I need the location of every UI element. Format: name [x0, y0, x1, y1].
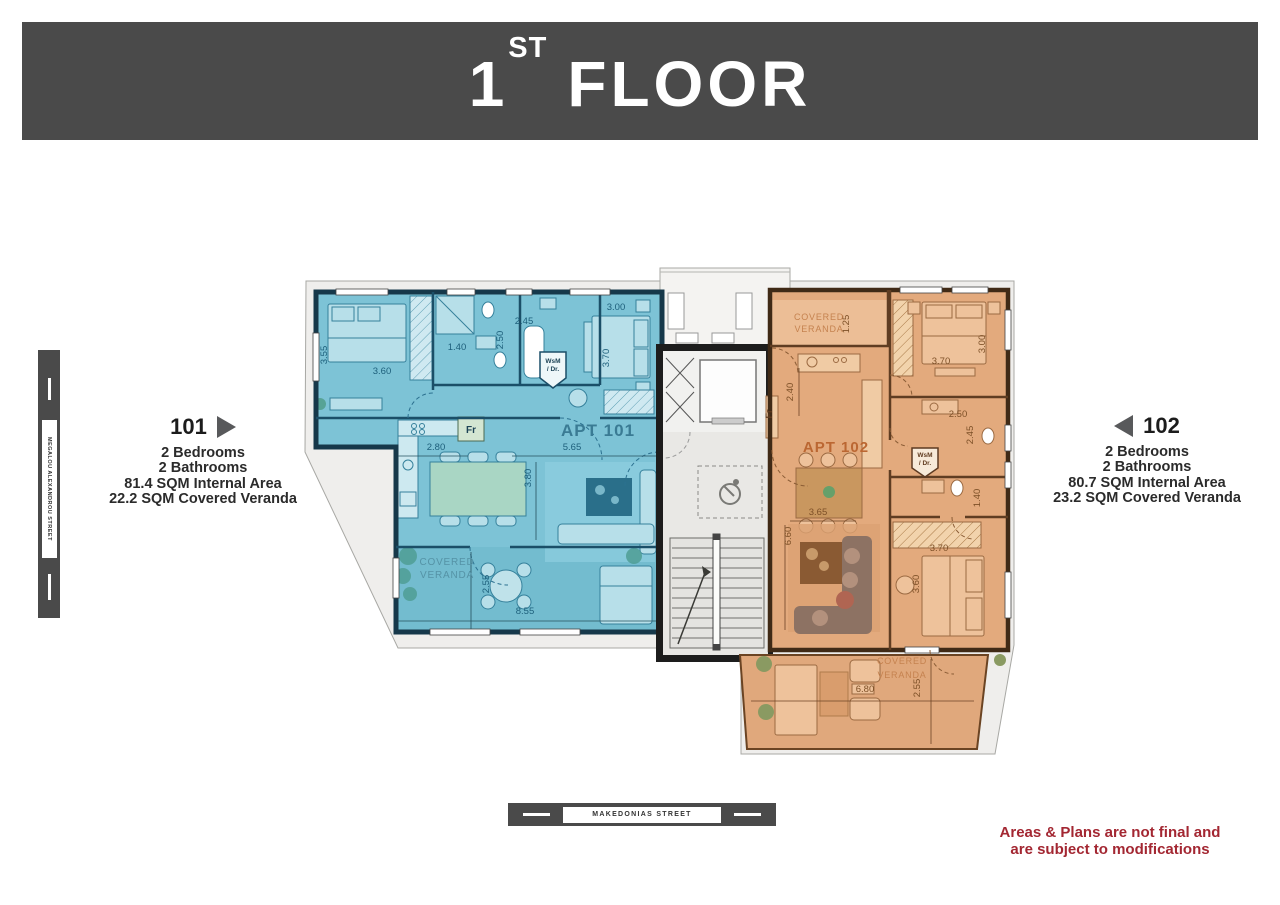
room-label: VERANDA [794, 324, 843, 334]
apt101-internal-area: 81.4 SQM Internal Area [88, 477, 318, 492]
apt101-bedrooms: 2 Bedrooms [88, 446, 318, 461]
lounger [668, 293, 684, 329]
street-dash [48, 574, 51, 600]
dimension-label: 3.70 [601, 349, 612, 368]
dimension-label: 6.60 [783, 527, 794, 546]
dimension-label: 1.40 [448, 342, 467, 353]
dimension-label: 3.70 [932, 356, 951, 367]
apt102-internal-area: 80.7 SQM Internal Area [1032, 476, 1262, 491]
dimension-label: 3.00 [607, 302, 626, 313]
dimension-label: 2.55 [481, 575, 492, 594]
veranda-102-top [770, 300, 888, 346]
street-sign-bottom: MAKEDONIAS STREET [508, 803, 776, 826]
street-name-box: MAKEDONIAS STREET [563, 807, 721, 823]
apartment-102-info: 102 2 Bedrooms 2 Bathrooms 80.7 SQM Inte… [1032, 413, 1262, 507]
apartment-102 [740, 287, 1011, 749]
apartment-102-number: 102 [1143, 413, 1180, 439]
dimension-label: 3.65 [809, 507, 828, 518]
dimension-label: 3.60 [911, 575, 922, 594]
staircase [670, 534, 764, 650]
dimension-label: 3.00 [977, 335, 988, 354]
apt102-veranda-area: 23.2 SQM Covered Veranda [1032, 491, 1262, 506]
room-label: COVERED [877, 656, 927, 666]
street-dash [523, 813, 550, 816]
core [656, 344, 774, 662]
apartment-101-number: 101 [170, 414, 207, 440]
street-name-left: MEGALOU ALEXANDROU STREET [46, 437, 52, 541]
dimension-label: 2.50 [949, 409, 968, 420]
dimension-label: 2.45 [965, 426, 976, 445]
dimension-label: 2.55 [912, 679, 923, 698]
room-label: APT 101 [561, 421, 635, 440]
dimension-label: 5.65 [563, 442, 582, 453]
room-label: Fr [466, 425, 476, 436]
room-label: VERANDA [877, 670, 926, 680]
room-label: / Dr. [919, 460, 931, 467]
dimension-label: 2.45 [515, 316, 534, 327]
street-name-bottom: MAKEDONIAS STREET [592, 811, 692, 818]
dimension-label: 2.50 [495, 331, 506, 350]
apt101-veranda-area: 22.2 SQM Covered Veranda [88, 492, 318, 507]
dimension-label: 3.80 [523, 469, 534, 488]
apt102-bathrooms: 2 Bathrooms [1032, 460, 1262, 475]
dimension-label: 3.70 [930, 543, 949, 554]
apt102-bedrooms: 2 Bedrooms [1032, 445, 1262, 460]
street-name-box: MEGALOU ALEXANDROU STREET [42, 420, 57, 558]
dimension-label: 1.40 [972, 489, 983, 508]
street-dash [48, 378, 51, 400]
disclaimer-line-1: Areas & Plans are not final and [955, 824, 1265, 841]
room-label: APT 102 [803, 439, 869, 456]
room-label: COVERED [794, 312, 844, 322]
dimension-label: 3.60 [373, 366, 392, 377]
room-label: Fr [764, 409, 774, 418]
street-dash [734, 813, 761, 816]
room-label: WsM [545, 358, 560, 365]
dimension-label: 6.80 [856, 684, 875, 695]
dimension-label: 2.40 [785, 383, 796, 402]
dimension-label: 2.80 [427, 442, 446, 453]
room-label: COVERED [419, 557, 474, 568]
room-label: WsM [917, 452, 932, 459]
triangle-left-icon [1114, 415, 1133, 437]
room-label: VERANDA [420, 570, 474, 581]
apartment-101-info: 101 2 Bedrooms 2 Bathrooms 81.4 SQM Inte… [88, 414, 318, 508]
triangle-right-icon [217, 416, 236, 438]
apt101-bathrooms: 2 Bathrooms [88, 461, 318, 476]
dimension-label: 3.55 [319, 346, 330, 365]
disclaimer: Areas & Plans are not final and are subj… [955, 824, 1265, 858]
elevator-cab [700, 360, 756, 422]
street-sign-left: MEGALOU ALEXANDROU STREET [38, 350, 60, 618]
dimension-label: 8.55 [516, 606, 535, 617]
lounger [736, 293, 752, 329]
disclaimer-line-2: are subject to modifications [955, 841, 1265, 858]
room-label: / Dr. [547, 366, 559, 373]
